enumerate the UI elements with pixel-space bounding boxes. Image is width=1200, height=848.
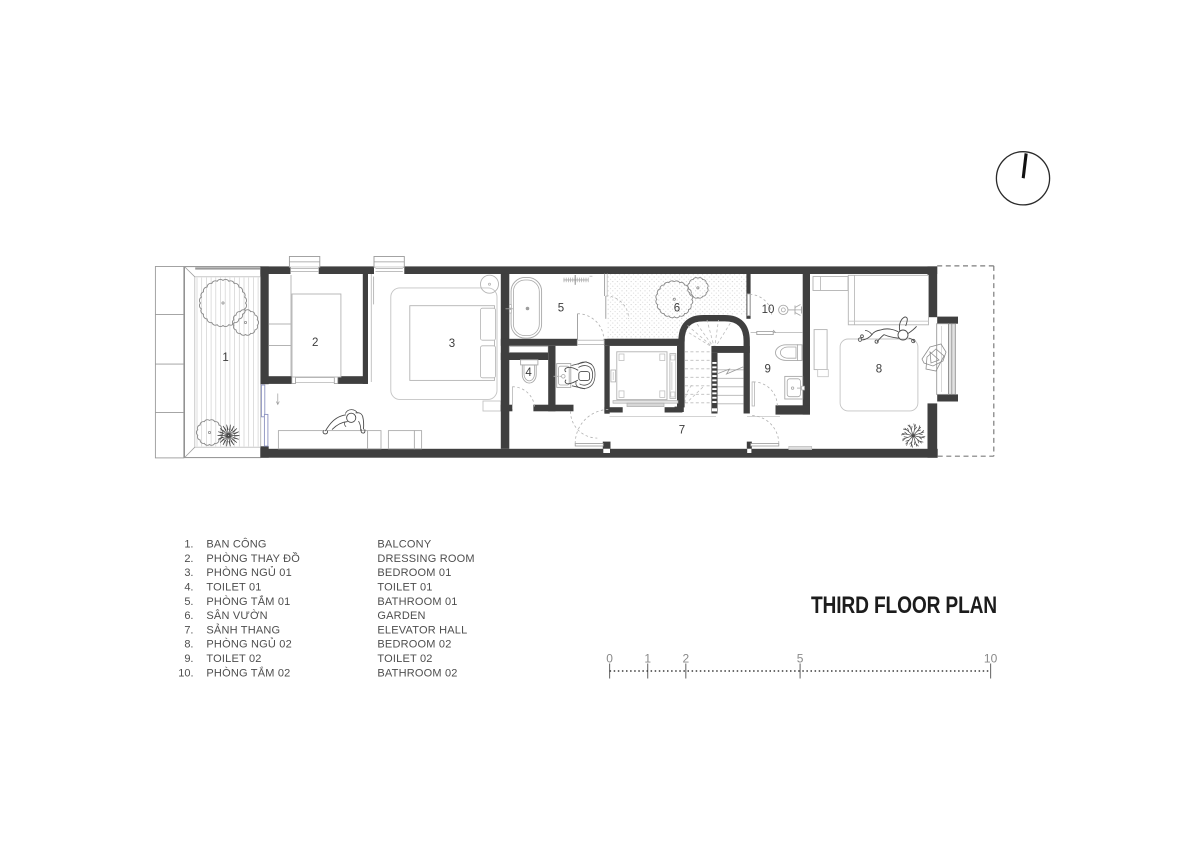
svg-text:TOILET 02: TOILET 02: [206, 653, 261, 665]
svg-text:9.: 9.: [184, 653, 193, 665]
svg-text:8: 8: [876, 364, 882, 376]
svg-text:BATHROOM 01: BATHROOM 01: [377, 596, 457, 608]
svg-text:BEDROOM 02: BEDROOM 02: [377, 639, 451, 651]
svg-text:1: 1: [222, 352, 228, 364]
svg-text:BATHROOM 02: BATHROOM 02: [377, 667, 457, 679]
svg-text:2.: 2.: [184, 553, 193, 565]
svg-text:BEDROOM 01: BEDROOM 01: [377, 567, 451, 579]
svg-text:SẢNH THANG: SẢNH THANG: [206, 623, 280, 636]
svg-text:BAN CÔNG: BAN CÔNG: [206, 538, 266, 551]
svg-text:4.: 4.: [184, 582, 193, 594]
svg-text:7.: 7.: [184, 624, 193, 636]
svg-text:PHÒNG THAY ĐỒ: PHÒNG THAY ĐỒ: [206, 552, 300, 565]
svg-text:PHÒNG TẮM 01: PHÒNG TẮM 01: [206, 595, 290, 608]
svg-text:PHÒNG TẮM 02: PHÒNG TẮM 02: [206, 666, 290, 679]
svg-text:PHÒNG NGỦ 02: PHÒNG NGỦ 02: [206, 638, 292, 651]
svg-text:4: 4: [525, 367, 532, 379]
svg-text:TOILET 02: TOILET 02: [377, 653, 432, 665]
svg-text:1: 1: [644, 652, 651, 666]
svg-text:TOILET 01: TOILET 01: [206, 582, 261, 594]
svg-text:GARDEN: GARDEN: [377, 610, 425, 622]
svg-text:10: 10: [984, 652, 998, 666]
svg-text:3.: 3.: [184, 567, 193, 579]
svg-text:2: 2: [312, 337, 318, 349]
svg-text:5: 5: [797, 652, 804, 666]
svg-text:9: 9: [764, 364, 770, 376]
svg-text:ELEVATOR HALL: ELEVATOR HALL: [377, 624, 467, 636]
svg-text:THIRD FLOOR PLAN: THIRD FLOOR PLAN: [811, 592, 997, 619]
svg-text:SÂN VƯỜN: SÂN VƯỜN: [206, 609, 267, 622]
svg-text:10: 10: [762, 304, 775, 316]
svg-text:0: 0: [606, 652, 613, 666]
svg-text:6.: 6.: [184, 610, 193, 622]
svg-text:10.: 10.: [178, 667, 193, 679]
svg-text:PHÒNG NGỦ 01: PHÒNG NGỦ 01: [206, 566, 292, 579]
svg-text:2: 2: [682, 652, 689, 666]
svg-text:5: 5: [558, 303, 564, 315]
svg-text:3: 3: [449, 338, 455, 350]
svg-text:6: 6: [674, 303, 680, 315]
svg-text:5.: 5.: [184, 596, 193, 608]
svg-text:BALCONY: BALCONY: [377, 539, 431, 551]
svg-text:1.: 1.: [184, 539, 193, 551]
svg-text:DRESSING ROOM: DRESSING ROOM: [377, 553, 474, 565]
svg-text:8.: 8.: [184, 639, 193, 651]
svg-text:TOILET 01: TOILET 01: [377, 582, 432, 594]
svg-text:7: 7: [679, 425, 685, 437]
